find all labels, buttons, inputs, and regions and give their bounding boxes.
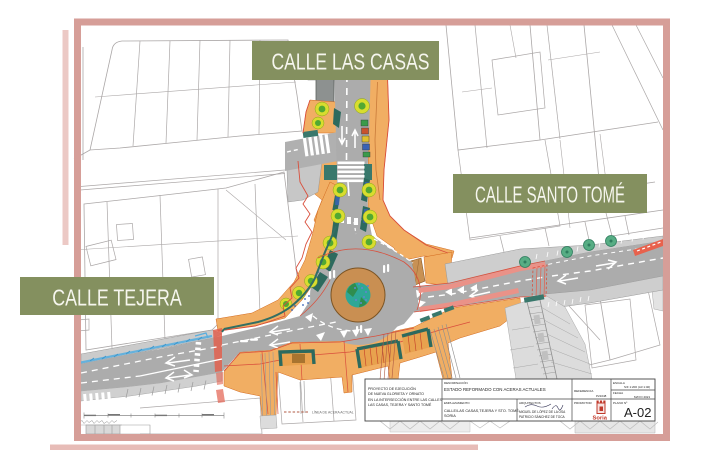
svg-text:REFERENCIA: REFERENCIA <box>574 389 593 393</box>
svg-text:MAYO 2021: MAYO 2021 <box>634 395 650 399</box>
svg-text:CALLE SANTO TOMÉ: CALLE SANTO TOMÉ <box>475 182 625 208</box>
svg-text:A-02: A-02 <box>624 405 651 420</box>
svg-text:P21048: P21048 <box>596 394 607 398</box>
svg-text:LAS CASAS, TEJERA Y SANTO TOMÉ: LAS CASAS, TEJERA Y SANTO TOMÉ <box>368 402 432 407</box>
svg-text:EMPLAZAMIENTO: EMPLAZAMIENTO <box>444 401 470 405</box>
svg-text:ESTADO REFORMADO CON ACERAS AC: ESTADO REFORMADO CON ACERAS ACTUALES <box>444 387 546 392</box>
svg-text:Soria: Soria <box>593 416 608 422</box>
svg-text:LÍNEA DE ACERA ACTUAL: LÍNEA DE ACERA ACTUAL <box>312 411 354 415</box>
svg-text:CALLE TEJERA: CALLE TEJERA <box>52 285 182 311</box>
svg-text:PATRICIO SÁNCHEZ DE TOCA: PATRICIO SÁNCHEZ DE TOCA <box>519 415 566 419</box>
svg-text:S/F 1:200 (A3 1:40): S/F 1:200 (A3 1:40) <box>624 385 650 389</box>
svg-text:DE NUEVA GLORIETA Y ORNATO: DE NUEVA GLORIETA Y ORNATO <box>368 392 424 396</box>
svg-text:CALLE LAS CASAS: CALLE LAS CASAS <box>272 49 430 75</box>
svg-text:CALLE/LAS CASAS,TEJERA Y STO.: CALLE/LAS CASAS,TEJERA Y STO. TOMÉ <box>444 408 519 413</box>
svg-text:PROYECTO DE EJECUCIÓN: PROYECTO DE EJECUCIÓN <box>368 386 416 391</box>
svg-text:SORIA: SORIA <box>444 414 456 418</box>
svg-text:DENOMINACIÓN: DENOMINACIÓN <box>444 380 468 385</box>
svg-text:ARQUITECTOS: ARQUITECTOS <box>519 401 541 405</box>
svg-text:PROMOTOR: PROMOTOR <box>574 401 592 405</box>
svg-text:EN LA INTERSECCIÓN ENTRE LAS C: EN LA INTERSECCIÓN ENTRE LAS CALLES <box>368 397 443 402</box>
svg-text:FECHA: FECHA <box>613 391 623 395</box>
